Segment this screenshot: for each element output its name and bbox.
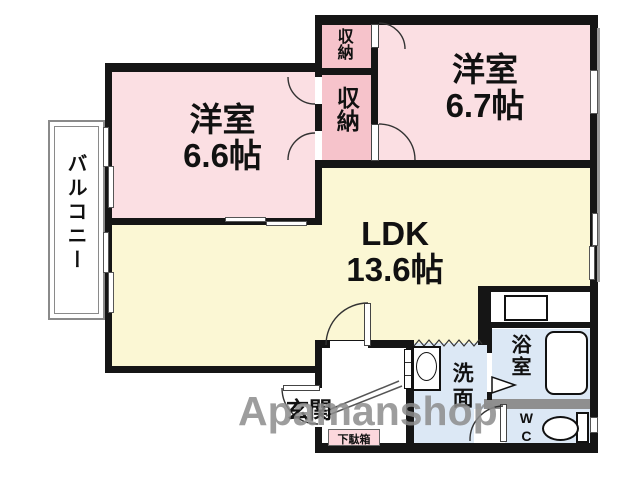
room-name: 洋室 — [395, 52, 575, 88]
balcony-label: バルコニー — [64, 153, 86, 273]
room-size: 6.7帖 — [395, 88, 575, 124]
door-arc — [379, 124, 415, 160]
bathroom-label: 浴室 — [508, 334, 530, 378]
floor-plan: 洋室 6.6帖 洋室 6.7帖 LDK 13.6帖 収納 収納 バルコニー 浴室… — [0, 0, 640, 480]
room-name: LDK — [310, 216, 480, 252]
washbasin-bowl — [416, 352, 437, 381]
door-arc — [379, 23, 405, 49]
wc-label: WC — [518, 410, 533, 446]
toilet-bowl — [542, 416, 579, 441]
room-size: 6.6帖 — [130, 138, 315, 174]
room-size: 13.6帖 — [310, 252, 480, 288]
bedroom-right-label: 洋室 6.7帖 — [395, 52, 575, 125]
closet-upper-label: 収納 — [334, 28, 352, 60]
closet-lower-label: 収納 — [333, 86, 358, 132]
bathtub — [545, 331, 588, 395]
room-name: 洋室 — [130, 102, 315, 138]
apamanshop-watermark: Apamanshop — [238, 388, 498, 435]
door-arc — [326, 303, 368, 345]
ldk-label: LDK 13.6帖 — [310, 216, 480, 289]
shoe-cabinet-label: 下駄箱 — [338, 434, 371, 446]
washing-machine-pan — [504, 295, 548, 321]
bedroom-left-label: 洋室 6.6帖 — [130, 102, 315, 175]
hall-cabinet — [404, 349, 412, 389]
door-arc — [288, 77, 315, 104]
